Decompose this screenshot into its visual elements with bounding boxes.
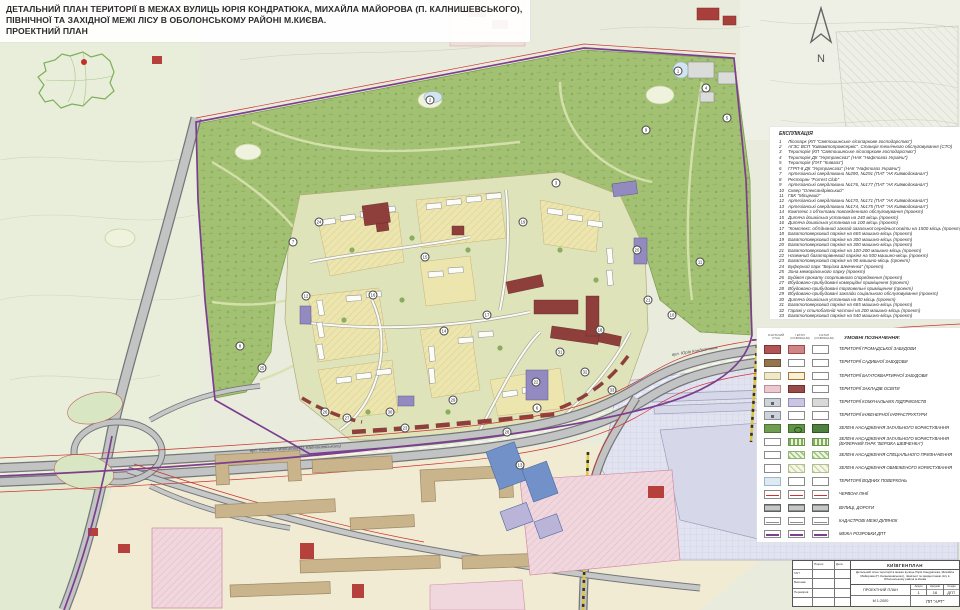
- legend-swatch: [764, 504, 781, 513]
- map-marker-32: 32: [581, 368, 590, 377]
- legend-swatch: [764, 464, 781, 473]
- map-marker-28: 28: [503, 428, 512, 437]
- north-label: N: [798, 53, 844, 65]
- map-marker-6: 6: [533, 404, 542, 413]
- legend-swatch: [812, 477, 829, 486]
- map-marker-31: 31: [556, 348, 565, 357]
- explication-list: 1Лісопарк (КП "Святошинське лісопаркове …: [779, 139, 960, 319]
- legend-swatch: [812, 517, 829, 526]
- map-marker-12: 12: [302, 292, 311, 301]
- legend-swatch: [812, 372, 829, 381]
- legend-swatch: [764, 398, 781, 407]
- stamp-role-author: Виконав: [793, 579, 813, 587]
- stamp-role-gap: ГАП: [793, 570, 813, 578]
- legend-swatch: [812, 464, 829, 473]
- legend-row: МЕЖА РОЗРОБКИ ДПТ: [764, 528, 960, 541]
- legend-row: ТЕРИТОРІЇ БАГАТОКВАРТИРНОЇ ЗАБУДОВИ: [764, 369, 960, 382]
- legend-swatch: [788, 438, 805, 447]
- map-marker-22: 22: [532, 378, 541, 387]
- legend-swatch: [788, 359, 805, 368]
- legend-label: ТЕРИТОРІЇ ВОДНИХ ПОВЕРХОНЬ: [839, 479, 907, 484]
- map-marker-26: 26: [321, 408, 330, 417]
- map-marker-7: 7: [289, 238, 298, 247]
- legend-swatch: [764, 424, 781, 433]
- legend-label: МЕЖА РОЗРОБКИ ДПТ: [839, 532, 886, 537]
- stamp-sheet-name: ПРОЕКТНИЙ ПЛАН: [851, 585, 911, 595]
- legend-col-head-3: ІІ ЕТАП (ОСВОЄННЯ): [812, 334, 836, 341]
- legend-swatch: [764, 345, 781, 354]
- stamp-title-block: ПідписДата ГАП Виконав Перевірив КИЇВГЕН…: [792, 560, 960, 607]
- map-marker-25: 25: [258, 364, 267, 373]
- legend-swatch: [788, 398, 805, 407]
- legend-label: ТЕРИТОРІЇ КОМУНАЛЬНИХ ПІДПРИЄМСТВ: [839, 400, 926, 405]
- legend-swatch: [812, 359, 829, 368]
- legend-row: ТЕРИТОРІЇ ГРОМАДСЬКОЇ ЗАБУДОВИ: [764, 343, 960, 356]
- legend-row: ЧЕРВОНІ ЛІНІЇ: [764, 488, 960, 501]
- stamp-signature-table: ПідписДата ГАП Виконав Перевірив: [793, 561, 851, 606]
- legend-label: ТЕРИТОРІЇ САДИБНОЇ ЗАБУДОВИ: [839, 360, 908, 365]
- map-marker-29: 29: [449, 396, 458, 405]
- legend-label: ТЕРИТОРІЇ ГРОМАДСЬКОЇ ЗАБУДОВИ: [839, 347, 916, 352]
- explication-panel: ЕКСПЛІКАЦІЯ 1Лісопарк (КП "Святошинське …: [770, 127, 960, 319]
- legend-row: ЗЕЛЕНІ НАСАДЖЕННЯ СПЕЦІАЛЬНОГО ПРИЗНАЧЕН…: [764, 449, 960, 462]
- legend-label: КАДАСТРОВІ МЕЖІ ДІЛЯНОК: [839, 519, 897, 524]
- plan-title-line2: ПІВНІЧНОЇ ТА ЗАХІДНОЇ МЕЖІ ЛІСУ В ОБОЛОН…: [6, 15, 522, 26]
- explication-heading: ЕКСПЛІКАЦІЯ: [779, 131, 960, 137]
- legend-row: ТЕРИТОРІЇ КОМУНАЛЬНИХ ПІДПРИЄМСТВ: [764, 396, 960, 409]
- legend-col-head-2: І ЕТАП (ОСВОЄННЯ): [788, 334, 812, 341]
- legend-swatch: [812, 490, 829, 499]
- legend-swatch: [812, 451, 829, 460]
- map-marker-14: 14: [440, 327, 449, 336]
- legend-swatch: [764, 385, 781, 394]
- legend-swatch: [764, 372, 781, 381]
- legend-row: ТЕРИТОРІЇ ЗАКЛАДІВ ОСВІТИ: [764, 383, 960, 396]
- legend-swatch: [764, 359, 781, 368]
- legend-swatch: [812, 398, 829, 407]
- legend-row: ТЕРИТОРІЇ ВОДНИХ ПОВЕРХОНЬ: [764, 475, 960, 488]
- legend-column-heads: ІСНУЮЧИЙ СТАН І ЕТАП (ОСВОЄННЯ) ІІ ЕТАП …: [764, 334, 960, 341]
- legend-label: ЗЕЛЕНІ НАСАДЖЕННЯ ЗАГАЛЬНОГО КОРИСТУВАНН…: [839, 426, 949, 431]
- map-marker-33: 33: [608, 386, 617, 395]
- map-marker-5: 5: [723, 114, 732, 123]
- map-marker-20: 20: [633, 246, 642, 255]
- map-marker-4: 4: [702, 84, 711, 93]
- map-marker-24: 24: [315, 218, 324, 227]
- kyiv-inset-map: [28, 42, 138, 122]
- legend-swatch: [788, 385, 805, 394]
- stamp-doc-title: Детальний план території в межах вулиць …: [851, 570, 959, 585]
- legend-col-head-1: ІСНУЮЧИЙ СТАН: [764, 334, 788, 341]
- stamp-col-stage: Стадія ДПТ: [944, 585, 959, 595]
- legend-swatch: [788, 477, 805, 486]
- north-arrow-icon: [798, 6, 844, 50]
- legend-label: ТЕРИТОРІЇ ІНЖЕНЕРНОЇ ІНФРАСТРУКТУРИ: [839, 413, 927, 418]
- map-marker-16: 16: [369, 291, 378, 300]
- stamp-head-date: Дата: [835, 561, 850, 569]
- legend-panel: ІСНУЮЧИЙ СТАН І ЕТАП (ОСВОЄННЯ) ІІ ЕТАП …: [757, 328, 960, 542]
- stamp-col-sheets-total: Аркушів 16: [927, 585, 943, 595]
- map-marker-21: 21: [644, 296, 653, 305]
- legend-swatch: [788, 424, 805, 433]
- explication-item: 33Багатоповерховий паркінг на 540 машино…: [779, 313, 960, 318]
- plan-title: ДЕТАЛЬНИЙ ПЛАН ТЕРИТОРІЇ В МЕЖАХ ВУЛИЦЬ …: [0, 0, 530, 42]
- stamp-firm: ПП "АРТ": [911, 596, 959, 606]
- legend-swatch: [764, 477, 781, 486]
- plan-title-line3: ПРОЕКТНИЙ ПЛАН: [6, 26, 522, 37]
- legend-label: ТЕРИТОРІЇ ЗАКЛАДІВ ОСВІТИ: [839, 387, 900, 392]
- legend-label: ТЕРИТОРІЇ БАГАТОКВАРТИРНОЇ ЗАБУДОВИ: [839, 374, 927, 379]
- map-marker-19: 19: [519, 218, 528, 227]
- map-marker-8: 8: [236, 342, 245, 351]
- inset-location-dot: [81, 59, 87, 65]
- stamp-organization: КИЇВГЕНПЛАН: [851, 561, 959, 570]
- legend-row: ЗЕЛЕНІ НАСАДЖЕННЯ ЗАГАЛЬНОГО КОРИСТУВАНН…: [764, 422, 960, 435]
- north-arrow: N: [798, 6, 844, 62]
- legend-swatch: [812, 411, 829, 420]
- map-marker-2: 2: [426, 96, 435, 105]
- legend-swatch: [788, 530, 805, 539]
- legend-row: ЗЕЛЕНІ НАСАДЖЕННЯ ЗАГАЛЬНОГО КОРИСТУВАНН…: [764, 435, 960, 448]
- map-marker-17: 17: [483, 311, 492, 320]
- map-marker-23: 23: [401, 424, 410, 433]
- legend-swatch: [764, 438, 781, 447]
- legend-label: ВУЛИЦІ, ДОРОГИ: [839, 506, 874, 511]
- map-marker-27: 27: [343, 414, 352, 423]
- legend-rows: ТЕРИТОРІЇ ГРОМАДСЬКОЇ ЗАБУДОВИТЕРИТОРІЇ …: [764, 343, 960, 541]
- map-marker-9: 9: [642, 126, 651, 135]
- legend-swatch: [812, 345, 829, 354]
- legend-heading: УМОВНІ ПОЗНАЧЕННЯ:: [844, 336, 900, 341]
- map-marker-1: 1: [674, 67, 683, 76]
- legend-swatch: [788, 490, 805, 499]
- legend-swatch: [764, 530, 781, 539]
- legend-swatch: [812, 385, 829, 394]
- legend-swatch: [812, 424, 829, 433]
- legend-swatch: [764, 517, 781, 526]
- legend-swatch: [764, 451, 781, 460]
- map-marker-15: 15: [421, 253, 430, 262]
- legend-swatch: [788, 345, 805, 354]
- legend-swatch: [788, 517, 805, 526]
- map-marker-10: 10: [668, 311, 677, 320]
- legend-swatch: [788, 411, 805, 420]
- map-marker-11: 11: [696, 258, 705, 267]
- legend-swatch: [812, 530, 829, 539]
- legend-swatch: [788, 464, 805, 473]
- stamp-scale: М 1:2000: [851, 596, 911, 606]
- legend-label: ЧЕРВОНІ ЛІНІЇ: [839, 492, 868, 497]
- legend-swatch: [764, 411, 781, 420]
- legend-swatch: [788, 372, 805, 381]
- legend-label: ЗЕЛЕНІ НАСАДЖЕННЯ ОБМЕЖЕНОГО КОРИСТУВАНН…: [839, 466, 952, 471]
- legend-label: ЗЕЛЕНІ НАСАДЖЕННЯ ЗАГАЛЬНОГО КОРИСТУВАНН…: [839, 437, 957, 446]
- map-marker-13: 13: [516, 461, 525, 470]
- legend-row: ТЕРИТОРІЇ ІНЖЕНЕРНОЇ ІНФРАСТРУКТУРИ: [764, 409, 960, 422]
- legend-swatch: [764, 490, 781, 499]
- legend-row: ТЕРИТОРІЇ САДИБНОЇ ЗАБУДОВИ: [764, 356, 960, 369]
- map-marker-3: 3: [552, 179, 561, 188]
- map-marker-18: 18: [596, 326, 605, 335]
- stamp-head-signature: Підпис: [813, 561, 835, 569]
- legend-row: ЗЕЛЕНІ НАСАДЖЕННЯ ОБМЕЖЕНОГО КОРИСТУВАНН…: [764, 462, 960, 475]
- plan-sheet: 1234567891011121314151617181920212223242…: [0, 0, 960, 610]
- legend-label: ЗЕЛЕНІ НАСАДЖЕННЯ СПЕЦІАЛЬНОГО ПРИЗНАЧЕН…: [839, 453, 952, 458]
- legend-swatch: [812, 504, 829, 513]
- stamp-role-checker: Перевірив: [793, 589, 813, 597]
- legend-swatch: [788, 504, 805, 513]
- legend-row: КАДАСТРОВІ МЕЖІ ДІЛЯНОК: [764, 514, 960, 527]
- stamp-col-sheet: Аркуш 1: [911, 585, 927, 595]
- legend-row: ВУЛИЦІ, ДОРОГИ: [764, 501, 960, 514]
- map-marker-30: 30: [386, 408, 395, 417]
- plan-title-line1: ДЕТАЛЬНИЙ ПЛАН ТЕРИТОРІЇ В МЕЖАХ ВУЛИЦЬ …: [6, 4, 522, 15]
- legend-swatch: [812, 438, 829, 447]
- legend-swatch: [788, 451, 805, 460]
